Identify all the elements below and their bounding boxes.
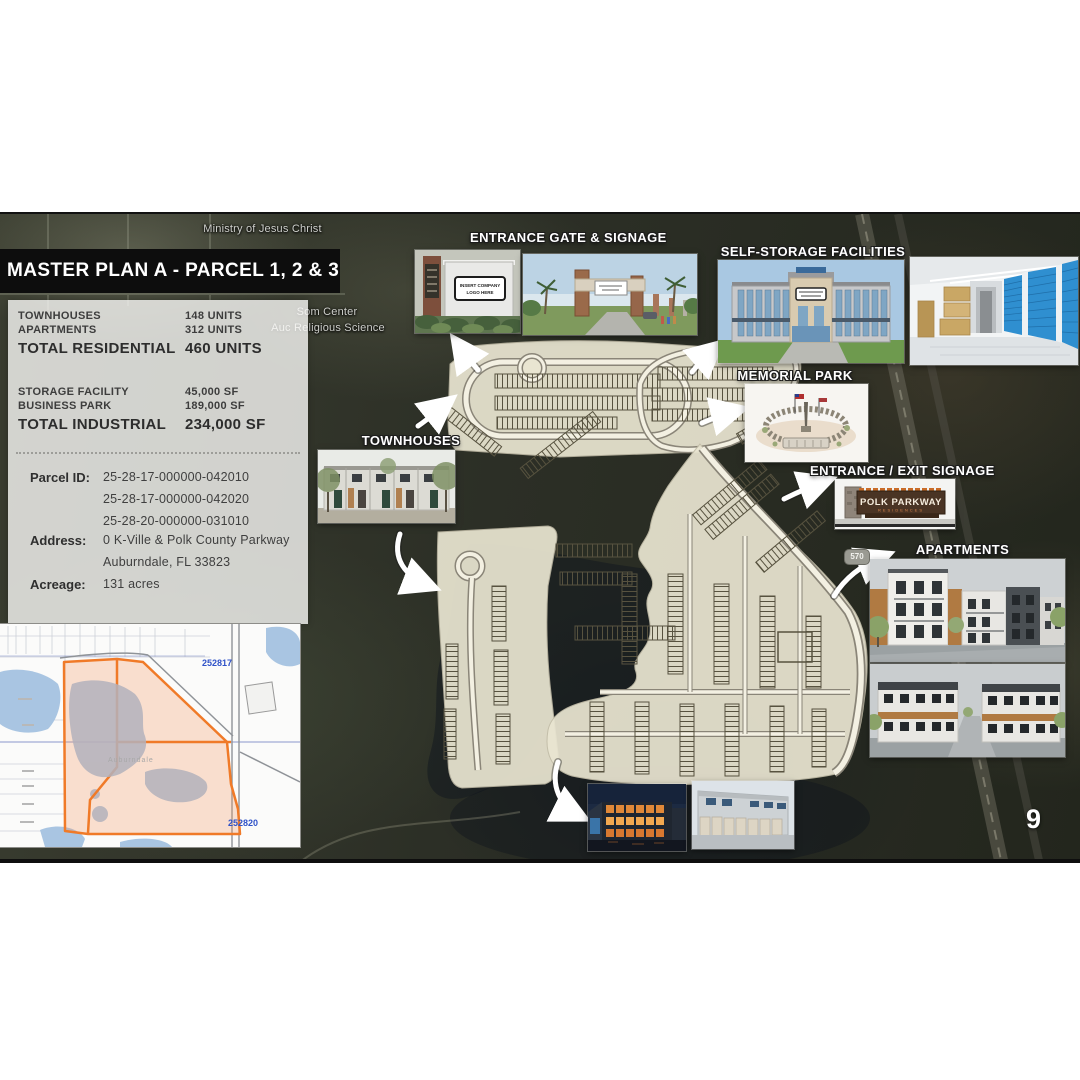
info-panel: TOWNHOUSES 148 UNITS APARTMENTS 312 UNIT…	[8, 300, 308, 624]
townhouses-photo	[318, 450, 455, 523]
parcel-gis-map: 252817 252820 Auburndale	[0, 624, 300, 847]
parcel-id-label: Parcel ID:	[30, 470, 90, 485]
warehouse-photo	[692, 781, 794, 849]
apartments-label: APARTMENTS	[18, 324, 97, 336]
siteplan-townhouse-strip	[437, 526, 558, 788]
map-label-ministry: Ministry of Jesus Christ	[165, 223, 360, 235]
address-label: Address:	[30, 533, 86, 548]
callout-townhouses: TOWNHOUSES	[346, 433, 476, 448]
business-park-sf: 189,000 SF	[185, 400, 245, 412]
shoreline	[300, 812, 520, 862]
polk-parkway-text: POLK PARKWAY	[860, 497, 942, 508]
entrance-sign-photo: INSERT COMPANY LOGO HERE	[415, 250, 520, 333]
total-industrial-value: 234,000 SF	[185, 416, 266, 433]
residences-text: RESIDENCES	[878, 508, 924, 513]
entrance-exit-sign-photo: POLK PARKWAY RESIDENCES	[835, 479, 955, 529]
gis-label-252820: 252820	[228, 818, 258, 828]
siteplan-residential	[547, 444, 867, 785]
apartments-units: 312 UNITS	[185, 324, 242, 336]
total-residential-label: TOTAL RESIDENTIAL	[18, 340, 176, 357]
callout-apartments: APARTMENTS	[900, 542, 1025, 557]
total-residential-value: 460 UNITS	[185, 340, 262, 357]
road-badge-570: 570	[845, 550, 869, 564]
panel-divider	[16, 452, 300, 454]
business-park-photo	[588, 784, 686, 851]
gis-label-252817: 252817	[202, 658, 232, 668]
acreage-value: 131 acres	[103, 577, 160, 591]
storage-logo-sign	[796, 288, 826, 300]
parcel-id-1: 25-28-17-000000-042010	[103, 470, 249, 484]
gis-label-city: Auburndale	[108, 757, 154, 764]
parcel-id-2: 25-28-17-000000-042020	[103, 492, 249, 506]
self-storage-interior-photo	[910, 257, 1078, 365]
address-line2: Auburndale, FL 33823	[103, 555, 230, 569]
townhouses-label: TOWNHOUSES	[18, 310, 101, 322]
logo-placeholder-line1: INSERT COMPANY	[460, 283, 500, 288]
apartments-photo-1	[870, 559, 1065, 662]
page-canvas: Ministry of Jesus Christ Som Center Auc …	[0, 0, 1080, 1080]
page-number: 9	[1026, 804, 1041, 835]
memorial-park-photo	[745, 384, 868, 462]
garage-doors	[700, 817, 782, 837]
logo-placeholder-sign	[455, 277, 505, 300]
logo-placeholder-line2: LOGO HERE	[466, 290, 493, 295]
apartment-building-left	[878, 682, 958, 742]
apartment-building-right	[982, 684, 1060, 742]
business-park-label: BUSINESS PARK	[18, 400, 112, 412]
slide-title: MASTER PLAN A - PARCEL 1, 2 & 3	[0, 249, 340, 293]
apartments-photo-2	[870, 664, 1065, 757]
callout-entrance-exit: ENTRANCE / EXIT SIGNAGE	[810, 463, 978, 478]
entrance-gate-photo	[523, 254, 697, 335]
townhouses-units: 148 UNITS	[185, 310, 242, 322]
acreage-label: Acreage:	[30, 577, 86, 592]
polk-parkway-sign: POLK PARKWAY RESIDENCES	[857, 488, 945, 518]
storage-facility-label: STORAGE FACILITY	[18, 386, 129, 398]
total-industrial-label: TOTAL INDUSTRIAL	[18, 416, 166, 433]
lake-shape	[427, 544, 692, 799]
callout-entrance-gate: ENTRANCE GATE & SIGNAGE	[470, 230, 654, 245]
master-plan-slide: Ministry of Jesus Christ Som Center Auc …	[0, 212, 1080, 863]
address-line1: 0 K-Ville & Polk County Parkway	[103, 533, 290, 547]
gis-structure	[245, 682, 276, 714]
parcel-map-drawing: 252817 252820 Auburndale	[0, 624, 300, 847]
parcel-id-3: 25-28-20-000000-031010	[103, 514, 249, 528]
callout-self-storage: SELF-STORAGE FACILITIES	[720, 244, 906, 259]
callout-memorial-park: MEMORIAL PARK	[734, 368, 856, 383]
self-storage-building-photo	[718, 260, 904, 363]
storage-facility-sf: 45,000 SF	[185, 386, 238, 398]
